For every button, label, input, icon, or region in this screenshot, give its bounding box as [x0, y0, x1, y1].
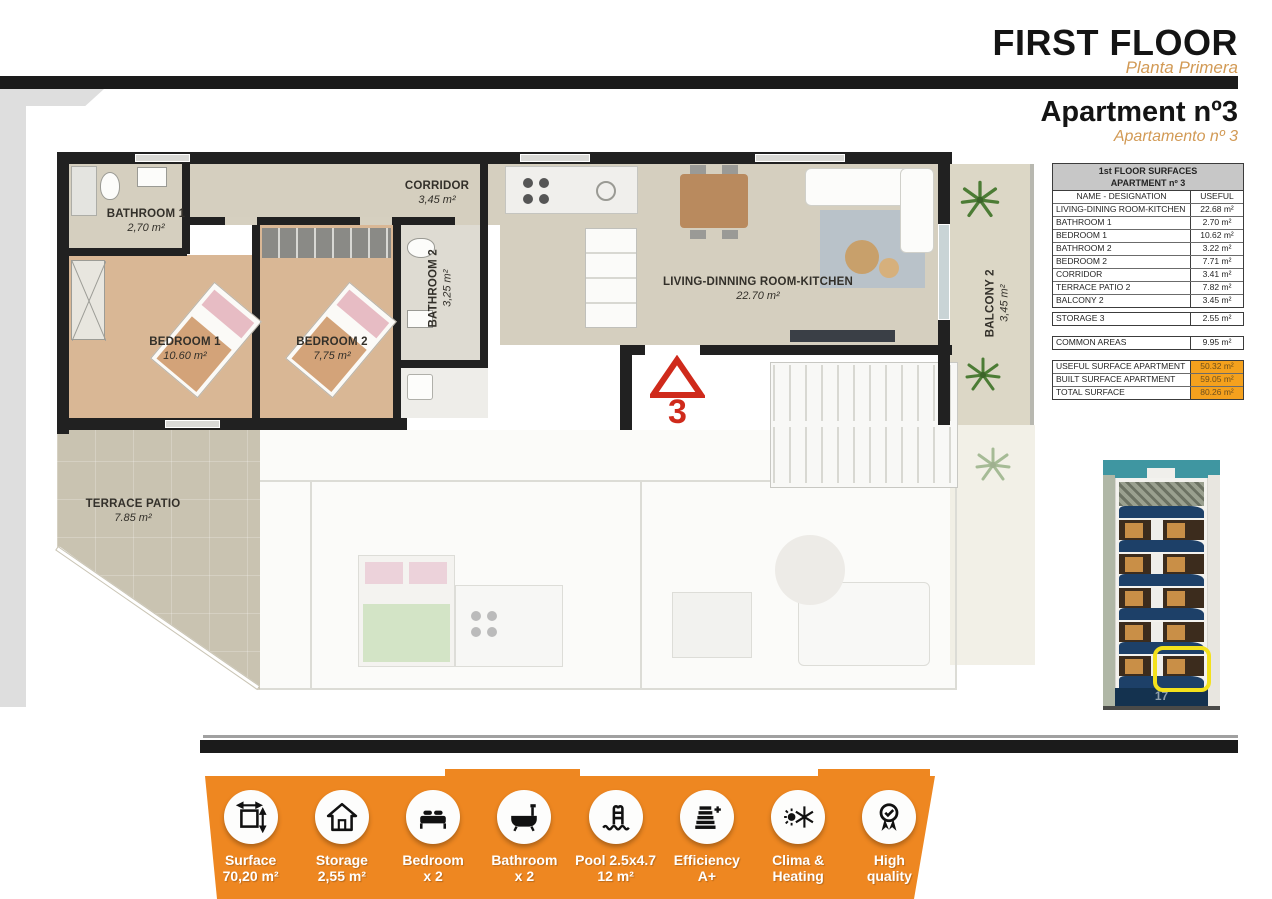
room-label-balcony2: BALCONY 23,45 m²	[985, 243, 1012, 363]
apartment-subtitle: Apartamento nº 3	[1114, 128, 1238, 146]
unit-highlight-box	[1153, 646, 1211, 692]
storage-table: STORAGE 32.55 m²	[1052, 312, 1244, 326]
palm-plant-icon	[958, 178, 1002, 222]
surfaces-table-title: 1st FLOOR SURFACES APARTMENT nº 3	[1053, 164, 1243, 191]
surface-dimensions-icon	[235, 801, 267, 833]
storage-house-icon	[326, 801, 358, 833]
kitchen-counter	[505, 166, 638, 214]
feature-bedroom: Bedroomx 2	[388, 790, 479, 884]
room-label-bathroom1: BATHROOM 12,70 m²	[81, 208, 211, 235]
top-divider-bar	[0, 76, 1238, 89]
roof-terrace	[1119, 482, 1204, 506]
quality-medal-icon	[873, 801, 905, 833]
feature-surface: Surface70,20 m²	[205, 790, 296, 884]
room-label-living: LIVING-DINNING ROOM-KITCHEN22.70 m²	[638, 276, 878, 303]
room-label-terrace: TERRACE PATIO7.85 m²	[68, 498, 198, 525]
feature-storage: Storage2,55 m²	[296, 790, 387, 884]
palm-plant-icon	[973, 445, 1013, 485]
table-row: BEDROOM 110.62 m²	[1053, 230, 1243, 243]
feature-quality: Highquality	[844, 790, 935, 884]
room-label-bedroom2: BEDROOM 27,75 m²	[267, 336, 397, 363]
feature-bathroom: Bathroomx 2	[479, 790, 570, 884]
flyer-canvas: { "header": { "title": "FIRST FLOOR", "s…	[0, 0, 1272, 899]
faded-bed	[358, 555, 455, 667]
surfaces-table-header: NAME - DESIGNATION USEFUL	[1053, 191, 1243, 204]
table-row: BEDROOM 27.71 m²	[1053, 256, 1243, 269]
feature-pool: Pool 2.5x4.712 m²	[570, 790, 661, 884]
bed-icon	[417, 801, 449, 833]
table-row: TERRACE PATIO 27.82 m²	[1053, 282, 1243, 295]
room-label-bathroom2: BATHROOM 23,25 m²	[428, 228, 455, 348]
table-row: BUILT SURFACE APARTMENT59.05 m²	[1053, 374, 1243, 387]
faded-rug	[775, 535, 845, 605]
table-row: BATHROOM 23.22 m²	[1053, 243, 1243, 256]
balcony-railing	[1030, 164, 1034, 425]
chair	[690, 165, 706, 174]
table-row: CORRIDOR3.41 m²	[1053, 269, 1243, 282]
closet	[585, 228, 637, 328]
street	[1103, 706, 1220, 710]
table-row: BATHROOM 12.70 m²	[1053, 217, 1243, 230]
page-subtitle: Planta Primera	[1126, 58, 1238, 78]
energy-efficiency-icon	[691, 801, 723, 833]
apartment-number-marker: 3	[650, 393, 705, 432]
room-label-bedroom1: BEDROOM 110.60 m²	[120, 336, 250, 363]
floorplan: 3 BATHROOM 12,70 m² CORRIDOR3,45 m² BATH…	[55, 150, 1037, 692]
faded-kitchen	[455, 585, 563, 667]
dining-table	[680, 174, 748, 228]
bottom-gray-line	[203, 735, 1238, 738]
faded-dining-table	[672, 592, 752, 658]
pool-ladder-icon	[600, 801, 632, 833]
room-label-corridor: CORRIDOR3,45 m²	[377, 180, 497, 207]
coffee-table	[845, 240, 879, 274]
wardrobe	[262, 228, 391, 258]
chair	[722, 165, 738, 174]
table-row: BALCONY 23.45 m²	[1053, 295, 1243, 307]
apartment-title: Apartment nº3	[1040, 96, 1238, 129]
bathtub-icon	[508, 801, 540, 833]
wardrobe-cross	[71, 260, 105, 340]
washer	[407, 374, 433, 400]
table-row: LIVING-DINING ROOM-KITCHEN22.68 m²	[1053, 204, 1243, 217]
sofa-chaise	[900, 168, 934, 253]
bottom-divider-bar	[200, 740, 1238, 753]
clima-heating-icon	[782, 801, 814, 833]
chair	[722, 230, 738, 239]
toilet	[100, 172, 120, 200]
table-row: TOTAL SURFACE80.26 m²	[1053, 387, 1243, 399]
surfaces-table: 1st FLOOR SURFACES APARTMENT nº 3 NAME -…	[1052, 163, 1244, 308]
table-row: USEFUL SURFACE APARTMENT50.32 m²	[1053, 361, 1243, 374]
table-row: STORAGE 32.55 m²	[1053, 313, 1243, 325]
chair	[690, 230, 706, 239]
building-render: 17	[1103, 460, 1220, 710]
feature-efficiency: EfficiencyA+	[661, 790, 752, 884]
tv-bench	[790, 330, 895, 342]
coffee-table	[879, 258, 899, 278]
neighbor-building	[1103, 475, 1115, 710]
common-areas-table: COMMON AREAS9.95 m²	[1052, 336, 1244, 350]
room-terrace-floor	[57, 425, 263, 690]
stairwell	[770, 362, 958, 488]
totals-table: USEFUL SURFACE APARTMENT50.32 m² BUILT S…	[1052, 360, 1244, 400]
table-row: COMMON AREAS9.95 m²	[1053, 337, 1243, 349]
feature-clima: Clima &Heating	[753, 790, 844, 884]
sink	[137, 167, 167, 187]
left-gray-strip	[0, 89, 26, 707]
features-banner: Surface70,20 m² Storage2,55 m² Bedroomx …	[205, 776, 935, 899]
